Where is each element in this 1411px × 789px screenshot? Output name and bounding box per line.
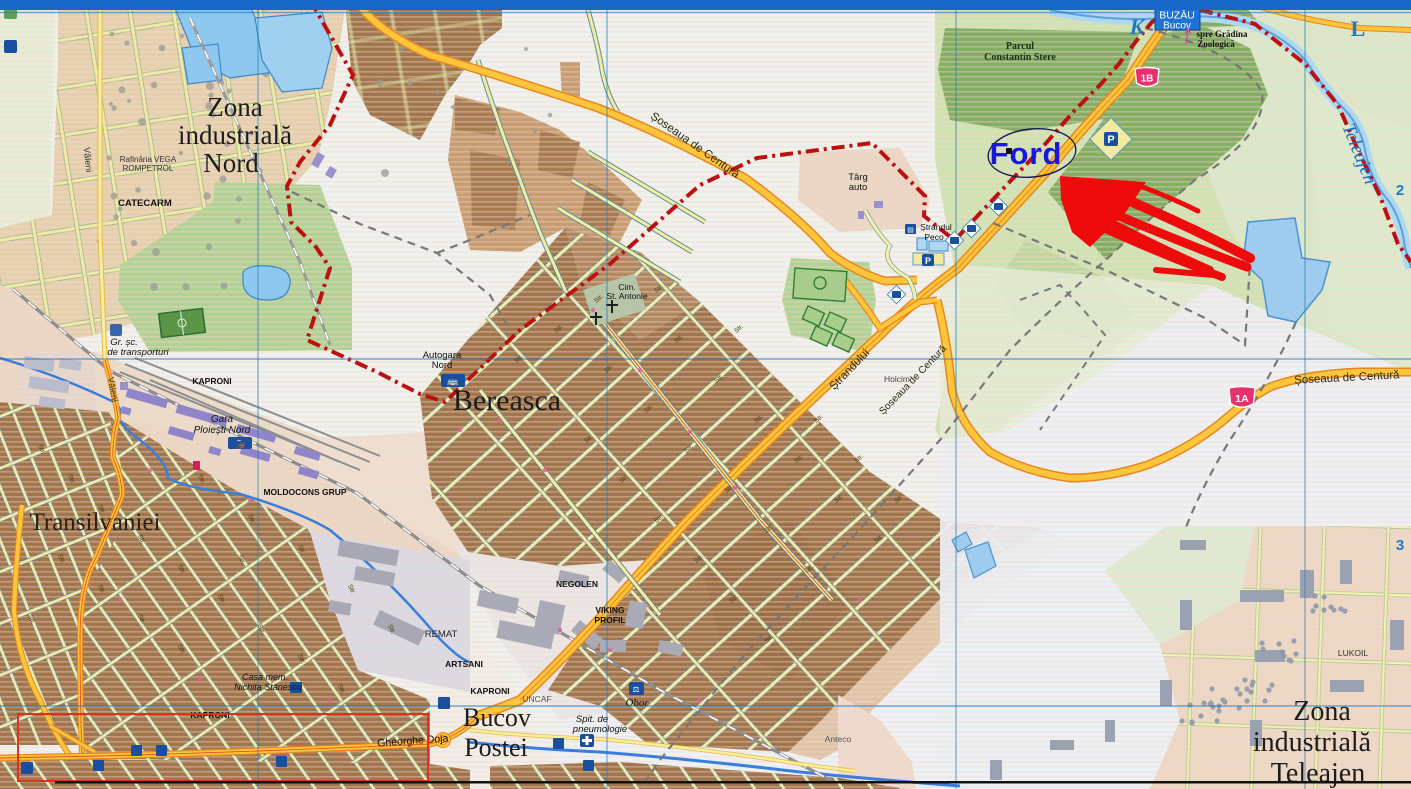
svg-text:P: P bbox=[925, 256, 931, 266]
svg-text:2: 2 bbox=[1396, 182, 1404, 199]
svg-text:industrială: industrială bbox=[178, 120, 292, 150]
svg-text:▤: ▤ bbox=[907, 227, 914, 234]
svg-text:VIKING: VIKING bbox=[595, 605, 625, 615]
svg-text:🚂: 🚂 bbox=[235, 439, 245, 449]
svg-text:NEGOLEN: NEGOLEN bbox=[556, 579, 598, 589]
svg-text:Ploiești Nord: Ploiești Nord bbox=[194, 425, 251, 436]
svg-text:Teleajen: Teleajen bbox=[1271, 758, 1365, 789]
svg-text:Ștrandul: Ștrandul bbox=[920, 222, 952, 232]
svg-text:Casa mem.: Casa mem. bbox=[242, 672, 288, 682]
svg-text:Anteco: Anteco bbox=[825, 734, 852, 744]
svg-text:Bereasca: Bereasca bbox=[453, 384, 561, 417]
svg-text:⚖: ⚖ bbox=[632, 685, 639, 694]
svg-text:Constantin Stere: Constantin Stere bbox=[984, 52, 1056, 63]
svg-text:ARTSANI: ARTSANI bbox=[445, 659, 483, 669]
svg-text:Bucov: Bucov bbox=[463, 703, 531, 732]
svg-text:ROMPETROL: ROMPETROL bbox=[123, 164, 174, 173]
svg-text:UNCAF: UNCAF bbox=[522, 694, 551, 704]
svg-text:Obor: Obor bbox=[625, 697, 649, 709]
svg-text:Zoologică: Zoologică bbox=[1197, 39, 1235, 49]
svg-text:Nichita Stănescu: Nichita Stănescu bbox=[234, 682, 302, 692]
svg-text:Nord: Nord bbox=[432, 360, 453, 371]
svg-text:CATECARM: CATECARM bbox=[118, 198, 172, 209]
svg-text:PROFIL: PROFIL bbox=[594, 615, 625, 625]
svg-text:L: L bbox=[1351, 16, 1366, 41]
svg-text:Parcul: Parcul bbox=[1006, 41, 1034, 52]
svg-text:3: 3 bbox=[1396, 537, 1404, 554]
svg-text:spre Grădina: spre Grădina bbox=[1196, 29, 1248, 39]
svg-text:St. Antonie: St. Antonie bbox=[606, 291, 647, 301]
svg-text:Transilvaniei: Transilvaniei bbox=[29, 509, 160, 536]
svg-text:REMAT: REMAT bbox=[425, 629, 458, 640]
svg-text:de transporturi: de transporturi bbox=[107, 347, 169, 358]
svg-text:1A: 1A bbox=[1235, 393, 1249, 405]
svg-text:KAPRONI: KAPRONI bbox=[192, 376, 231, 386]
svg-text:Postei: Postei bbox=[464, 733, 528, 762]
svg-text:LUKOIL: LUKOIL bbox=[1338, 648, 1369, 658]
svg-text:1B: 1B bbox=[1141, 74, 1154, 85]
svg-text:industrială: industrială bbox=[1253, 727, 1372, 758]
svg-text:K: K bbox=[1129, 14, 1146, 39]
svg-text:P: P bbox=[1107, 134, 1114, 146]
svg-text:pneumologie: pneumologie bbox=[572, 724, 627, 735]
svg-text:Rafinăria VEGA: Rafinăria VEGA bbox=[120, 155, 177, 164]
svg-text:Ford: Ford bbox=[990, 136, 1063, 171]
svg-text:MOLDOCONS GRUP: MOLDOCONS GRUP bbox=[263, 487, 346, 497]
svg-text:Zona: Zona bbox=[1293, 696, 1351, 727]
svg-text:auto: auto bbox=[849, 182, 868, 193]
svg-text:KAPRONI: KAPRONI bbox=[470, 686, 509, 696]
svg-text:Gara: Gara bbox=[211, 414, 234, 425]
svg-text:Zona: Zona bbox=[207, 92, 262, 122]
svg-text:Nord: Nord bbox=[203, 148, 259, 178]
svg-text:Peco: Peco bbox=[924, 232, 944, 242]
